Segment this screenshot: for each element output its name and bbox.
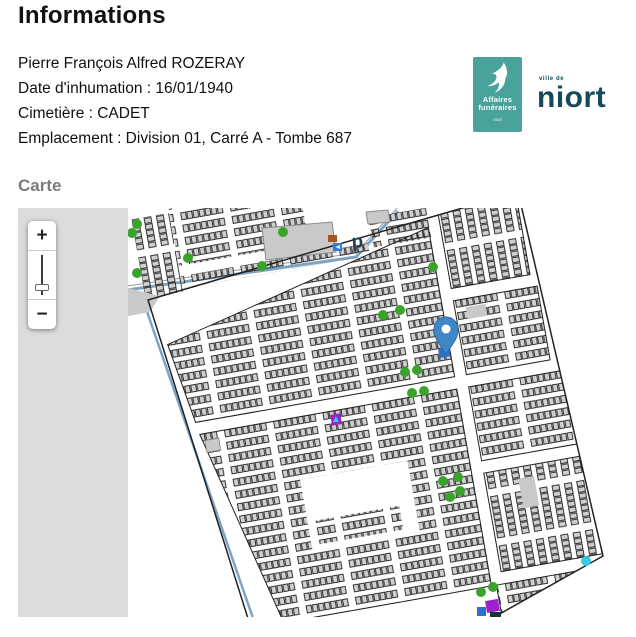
funeral-logo-footer: niort [493,117,502,122]
purple-marker-2 [477,599,501,617]
plot-location: Emplacement : Division 01, Carré A - Tom… [18,126,352,151]
tree-icon [132,219,142,229]
zoom-in-button[interactable]: + [28,221,56,250]
tree-icon [488,582,498,592]
cemetery-map[interactable]: p + − [18,208,622,617]
dove-icon [481,60,515,96]
tree-icon [476,587,486,597]
city-logo-name: niort [537,83,606,113]
parking-label: p [351,231,364,253]
building-small [366,210,390,224]
affaires-funeraires-logo: Affaires funéraires niort [473,57,522,132]
tree-icon [278,227,288,237]
cemetery-name: Cimetière : CADET [18,101,352,126]
tree-icon [407,388,417,398]
tree-icon [438,476,448,486]
tree-icon [183,253,193,263]
cemetery-map-canvas[interactable]: p [18,208,622,617]
cyan-marker [581,556,591,566]
funeral-logo-line2: funéraires [478,104,516,112]
tree-icon [127,228,137,238]
deceased-name: Pierre François Alfred ROZERAY [18,51,352,76]
page-title: Informations [18,2,166,30]
purple-marker-1 [330,413,342,426]
brown-marker [328,235,337,242]
inhumation-date: Date d'inhumation : 16/01/1940 [18,76,352,101]
tree-icon [412,365,422,375]
tree-icon [395,305,405,315]
tree-icon [378,310,388,320]
tree-icon [455,486,465,496]
zoom-slider-handle[interactable] [35,284,49,291]
tree-icon [453,472,463,482]
ville-de-niort-logo: ville de niort [537,76,606,113]
tree-icon [445,492,455,502]
tree-icon [400,367,410,377]
zoom-slider[interactable] [28,250,56,300]
map-zoom-control: + − [28,221,56,329]
zoom-out-button[interactable]: − [28,300,56,329]
tree-icon [428,262,438,272]
deceased-info: Pierre François Alfred ROZERAY Date d'in… [18,51,352,151]
tree-icon [419,386,429,396]
map-section-title: Carte [18,176,61,196]
tree-icon [257,261,267,271]
tree-icon [132,268,142,278]
